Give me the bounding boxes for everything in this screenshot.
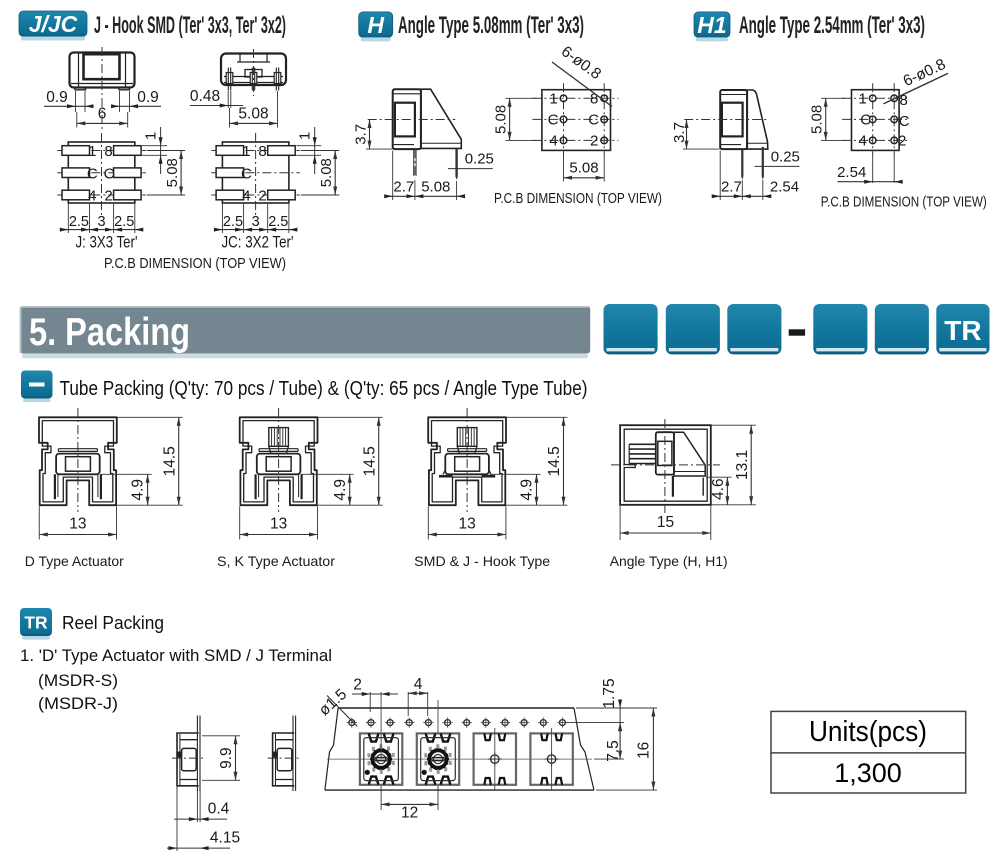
svg-text:4.6: 4.6 bbox=[710, 478, 727, 500]
svg-text:0.25: 0.25 bbox=[771, 148, 800, 165]
svg-text:1: 1 bbox=[297, 132, 314, 140]
svg-text:14.5: 14.5 bbox=[161, 446, 178, 476]
svg-text:SMD & J - Hook Type: SMD & J - Hook Type bbox=[414, 553, 550, 569]
svg-text:2: 2 bbox=[898, 133, 906, 150]
svg-text:C: C bbox=[548, 112, 559, 129]
svg-text:3.7: 3.7 bbox=[353, 124, 370, 145]
svg-text:J: 3X3 Ter': J: 3X3 Ter' bbox=[76, 234, 138, 252]
svg-text:J/JC: J/JC bbox=[29, 11, 78, 37]
svg-text:P.C.B DIMENSION (TOP VIEW): P.C.B DIMENSION (TOP VIEW) bbox=[821, 195, 987, 211]
svg-text:0.9: 0.9 bbox=[46, 89, 68, 106]
svg-text:15: 15 bbox=[657, 514, 674, 531]
svg-text:1. 'D' Type Actuator with SMD: 1. 'D' Type Actuator with SMD / J Termin… bbox=[20, 646, 332, 665]
svg-text:16: 16 bbox=[635, 742, 652, 759]
svg-text:2.54: 2.54 bbox=[770, 178, 799, 195]
svg-text:2.7: 2.7 bbox=[721, 178, 742, 195]
svg-text:2.5: 2.5 bbox=[223, 214, 243, 230]
svg-text:5.08: 5.08 bbox=[809, 105, 826, 134]
svg-text:5. Packing: 5. Packing bbox=[29, 311, 190, 354]
svg-text:2.54: 2.54 bbox=[837, 164, 866, 181]
svg-text:6: 6 bbox=[98, 106, 107, 123]
svg-text:6-ø0.8: 6-ø0.8 bbox=[558, 43, 604, 83]
svg-text:0.48: 0.48 bbox=[190, 88, 220, 105]
svg-text:4.15: 4.15 bbox=[210, 830, 240, 847]
svg-text:2: 2 bbox=[353, 677, 362, 694]
svg-text:4.9: 4.9 bbox=[519, 479, 536, 501]
svg-text:8: 8 bbox=[104, 143, 112, 160]
svg-text:S, K Type Actuator: S, K Type Actuator bbox=[217, 553, 335, 569]
svg-text:5.08: 5.08 bbox=[421, 178, 450, 195]
svg-text:(MSDR-S): (MSDR-S) bbox=[38, 672, 118, 690]
svg-text:C: C bbox=[588, 112, 599, 129]
svg-text:3.7: 3.7 bbox=[671, 122, 688, 143]
svg-text:C: C bbox=[87, 165, 98, 182]
svg-text:4.9: 4.9 bbox=[130, 479, 147, 501]
svg-text:(MSDR-J): (MSDR-J) bbox=[38, 695, 118, 713]
svg-text:7.5: 7.5 bbox=[605, 740, 622, 762]
svg-text:14.5: 14.5 bbox=[361, 446, 378, 476]
svg-text:0.25: 0.25 bbox=[465, 150, 494, 167]
svg-text:J - Hook SMD (Ter' 3x3, Ter' 3: J - Hook SMD (Ter' 3x3, Ter' 3x2) bbox=[94, 12, 286, 39]
svg-text:4: 4 bbox=[88, 188, 96, 205]
svg-text:Angle Type (H, H1): Angle Type (H, H1) bbox=[610, 553, 728, 569]
svg-text:1: 1 bbox=[143, 132, 160, 140]
svg-text:2.7: 2.7 bbox=[393, 178, 414, 195]
svg-text:4: 4 bbox=[242, 188, 250, 205]
svg-text:1: 1 bbox=[859, 91, 867, 108]
svg-text:13: 13 bbox=[69, 516, 86, 533]
svg-text:TR: TR bbox=[944, 315, 981, 346]
svg-text:P.C.B DIMENSION (TOP VIEW): P.C.B DIMENSION (TOP VIEW) bbox=[104, 256, 286, 272]
svg-text:5.08: 5.08 bbox=[164, 158, 181, 187]
svg-text:13: 13 bbox=[458, 516, 475, 533]
svg-text:JC: 3X2 Ter': JC: 3X2 Ter' bbox=[222, 234, 294, 252]
svg-text:H: H bbox=[367, 12, 384, 38]
svg-text:TR: TR bbox=[24, 613, 48, 633]
svg-text:13.1: 13.1 bbox=[734, 450, 751, 480]
svg-text:D Type Actuator: D Type Actuator bbox=[25, 553, 124, 569]
svg-text:5.08: 5.08 bbox=[492, 105, 509, 134]
svg-text:C: C bbox=[860, 112, 871, 129]
svg-text:5.08: 5.08 bbox=[238, 106, 268, 123]
svg-text:4: 4 bbox=[549, 133, 557, 150]
svg-text:1: 1 bbox=[242, 143, 250, 160]
svg-text:C: C bbox=[104, 165, 115, 182]
svg-text:2: 2 bbox=[590, 133, 598, 150]
svg-text:3: 3 bbox=[98, 214, 106, 230]
svg-text:8: 8 bbox=[258, 143, 266, 160]
svg-text:9.9: 9.9 bbox=[218, 747, 235, 769]
svg-text:0.9: 0.9 bbox=[137, 89, 159, 106]
svg-text:Reel Packing: Reel Packing bbox=[62, 612, 164, 633]
svg-text:P.C.B DIMENSION (TOP VIEW): P.C.B DIMENSION (TOP VIEW) bbox=[494, 191, 662, 207]
svg-text:1: 1 bbox=[549, 91, 557, 108]
svg-text:13: 13 bbox=[270, 516, 287, 533]
svg-text:4: 4 bbox=[859, 133, 867, 150]
svg-text:2.5: 2.5 bbox=[268, 214, 288, 230]
svg-text:12: 12 bbox=[401, 805, 418, 822]
svg-text:2: 2 bbox=[258, 188, 266, 205]
svg-text:5.08: 5.08 bbox=[318, 158, 335, 187]
svg-text:C: C bbox=[899, 113, 910, 130]
svg-text:1,300: 1,300 bbox=[834, 758, 902, 788]
svg-text:Angle Type 5.08mm (Ter' 3x3): Angle Type 5.08mm (Ter' 3x3) bbox=[398, 12, 584, 39]
svg-text:14.5: 14.5 bbox=[546, 446, 563, 476]
svg-text:2.5: 2.5 bbox=[69, 214, 89, 230]
svg-text:Tube Packing (Q'ty: 70 pcs / T: Tube Packing (Q'ty: 70 pcs / Tube) & (Q'… bbox=[60, 378, 588, 400]
svg-text:2: 2 bbox=[104, 188, 112, 205]
svg-text:H1: H1 bbox=[697, 12, 726, 38]
svg-text:0.4: 0.4 bbox=[208, 801, 230, 818]
svg-text:C: C bbox=[241, 165, 252, 182]
svg-text:4.9: 4.9 bbox=[332, 479, 349, 501]
svg-text:Angle Type 2.54mm (Ter' 3x3): Angle Type 2.54mm (Ter' 3x3) bbox=[739, 12, 925, 39]
svg-text:5.08: 5.08 bbox=[569, 159, 598, 176]
svg-text:Units(pcs): Units(pcs) bbox=[809, 716, 927, 748]
svg-text:1.75: 1.75 bbox=[601, 678, 618, 708]
svg-text:2.5: 2.5 bbox=[114, 214, 134, 230]
svg-text:1: 1 bbox=[88, 143, 96, 160]
svg-text:3: 3 bbox=[252, 214, 260, 230]
svg-text:4: 4 bbox=[414, 676, 423, 693]
